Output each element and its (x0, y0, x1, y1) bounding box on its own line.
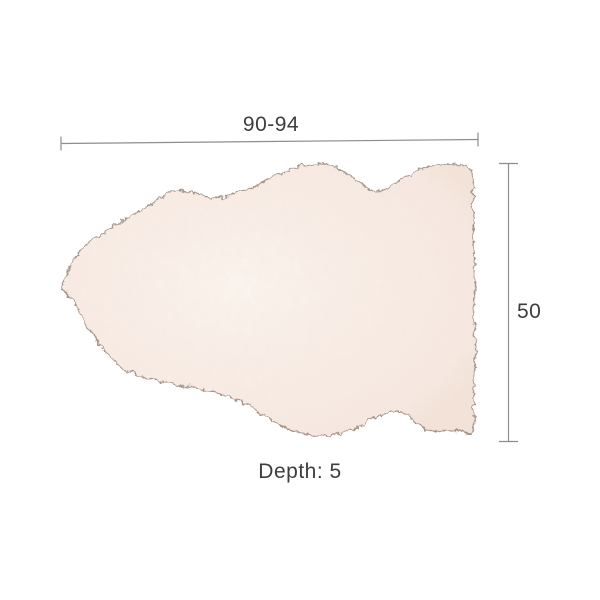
diagram-canvas (0, 0, 600, 600)
rug-illustration (62, 162, 475, 435)
width-dimension-label: 90-94 (221, 114, 321, 135)
height-dimension (499, 164, 518, 442)
product-dimension-diagram: 90-94 50 Depth: 5 (0, 0, 600, 600)
width-dimension-line (61, 140, 478, 144)
height-dimension-label: 50 (517, 301, 541, 322)
rug-fur-texture (62, 162, 475, 435)
depth-label: Depth: 5 (220, 461, 380, 482)
